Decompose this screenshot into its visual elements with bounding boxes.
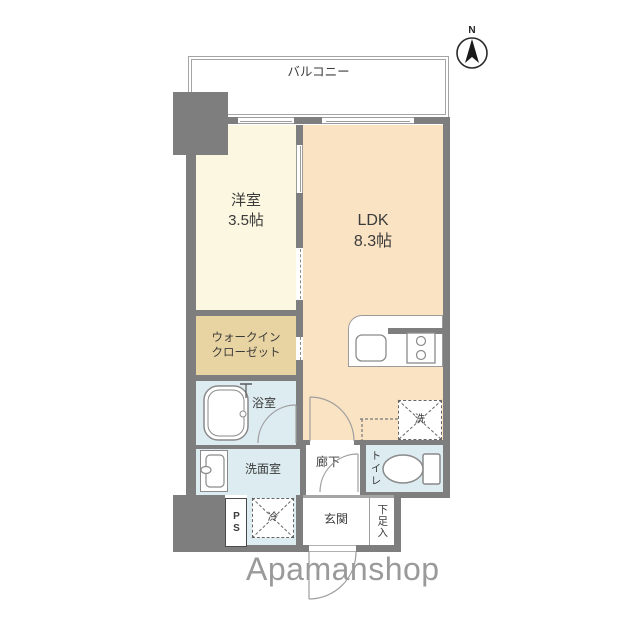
- fridge-label: 冷: [268, 511, 279, 525]
- floor-plan: バルコニー 洋室 3.5帖 LDK 8.3帖 ウォークイン クローゼット 浴室 …: [0, 0, 640, 640]
- window: [322, 117, 414, 124]
- washroom-label: 洗面室: [226, 462, 300, 478]
- wall-hall-left: [300, 445, 306, 498]
- shoe-box-label: 下足入: [377, 504, 388, 539]
- pipe-space: PS: [225, 498, 247, 547]
- compass: N: [452, 24, 492, 74]
- wall-segment: [303, 440, 310, 445]
- entrance-step-line: [303, 495, 394, 498]
- wall-ldk-bottom: [354, 440, 450, 445]
- wall-left: [186, 155, 196, 495]
- washer-space: 洗: [398, 400, 442, 440]
- wall-segment: [296, 193, 303, 248]
- wic-label-line1: ウォークイン: [212, 331, 281, 346]
- pillar: [173, 92, 228, 155]
- wall-segment: [296, 360, 303, 445]
- ldk-label: LDK 8.3帖: [303, 211, 443, 253]
- room-ldk: LDK 8.3帖: [303, 125, 443, 440]
- window: [238, 117, 294, 124]
- washer-label: 洗: [415, 413, 426, 427]
- pipe-space-label: PS: [231, 511, 241, 535]
- bedroom-size: 3.5帖: [228, 211, 264, 231]
- fridge-space: 冷: [252, 498, 294, 538]
- room-bathroom: 浴室: [196, 381, 296, 445]
- entrance-label: 玄関: [303, 512, 369, 528]
- wall-bath-top: [188, 375, 303, 381]
- wall-kitchen-stub: [388, 328, 443, 334]
- wall-wic-top: [188, 310, 303, 316]
- wall-entrance-left: [296, 495, 303, 552]
- kitchen-counter: [348, 315, 443, 367]
- bedroom-label: 洋室 3.5帖: [228, 191, 264, 230]
- room-hallway: 廊下: [306, 445, 360, 498]
- washbasin-counter: [200, 450, 228, 492]
- ldk-size: 8.3帖: [303, 232, 443, 253]
- wall-bath-bottom: [188, 445, 306, 449]
- wall-segment: [296, 300, 303, 337]
- wall-entrance-right: [394, 498, 401, 552]
- wic-opening: [296, 337, 303, 360]
- hallway-label: 廊下: [306, 455, 350, 471]
- room-toilet: トイレ: [366, 445, 443, 492]
- wall-toilet-left: [360, 445, 366, 495]
- bathroom-label: 浴室: [252, 396, 276, 412]
- wic-label: ウォークイン クローゼット: [212, 331, 281, 361]
- brand-logo: Apamanshop: [246, 551, 440, 588]
- wall-bottom-left-mass: [173, 495, 225, 552]
- wall-segment: [296, 125, 303, 145]
- wic-label-line2: クローゼット: [212, 346, 281, 361]
- shoe-box: 下足入: [369, 498, 394, 545]
- toilet-label: トイレ: [370, 450, 381, 488]
- bedroom-name: 洋室: [228, 191, 264, 211]
- wall-segment: [294, 117, 322, 124]
- ldk-name: LDK: [303, 211, 443, 232]
- folding-door: [296, 248, 303, 300]
- compass-label: N: [452, 24, 492, 37]
- sliding-door: [296, 145, 303, 193]
- room-walk-in-closet: ウォークイン クローゼット: [196, 316, 296, 375]
- balcony-label: バルコニー: [188, 64, 449, 80]
